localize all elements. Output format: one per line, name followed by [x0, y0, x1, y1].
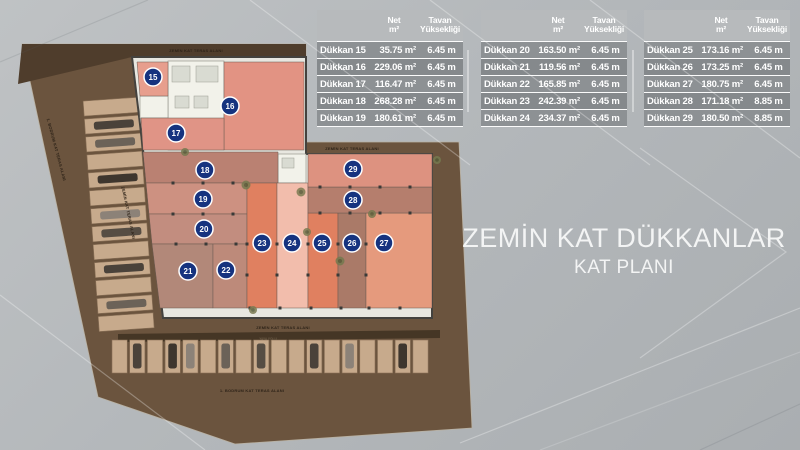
- parking-stall: [378, 340, 393, 373]
- label-terrace-bottom: ZEMİN KAT TERAS ALANI: [256, 325, 310, 330]
- parking-stall: [324, 340, 339, 373]
- unit-badge-18: 18: [196, 161, 214, 179]
- unit-28: [308, 187, 432, 213]
- unit-badge-28: 28: [344, 191, 362, 209]
- car: [257, 344, 266, 369]
- svg-text:23: 23: [258, 239, 267, 248]
- label-basement-bottom: 1. BODRUM KAT TERAS ALANI: [220, 388, 284, 393]
- parking-stall: [360, 340, 375, 373]
- title-line2: KAT PLANI: [452, 257, 796, 279]
- table-header: Netm² TavanYüksekliği: [644, 10, 790, 40]
- car: [221, 344, 230, 369]
- parking-stall: [112, 340, 127, 373]
- unit-badge-24: 24: [283, 234, 301, 252]
- table-row: Dükkan 29180.50 m²8.85 m: [644, 110, 790, 127]
- unit-badge-26: 26: [343, 234, 361, 252]
- unit-badge-17: 17: [167, 124, 185, 142]
- unit-badge-22: 22: [217, 261, 235, 279]
- car: [310, 344, 319, 369]
- car: [345, 344, 354, 369]
- unit-badge-20: 20: [195, 220, 213, 238]
- unit-25: [308, 213, 338, 308]
- header-ceiling: TavanYüksekliği: [745, 16, 789, 35]
- unit-badge-21: 21: [179, 262, 197, 280]
- unit-badge-15: 15: [144, 68, 162, 86]
- table-header: Netm² TavanYüksekliği: [317, 10, 463, 40]
- table-row: Dükkan 26173.25 m²6.45 m: [644, 59, 790, 76]
- table-row: Dükkan 25173.16 m²6.45 m: [644, 42, 790, 59]
- svg-text:15: 15: [149, 73, 158, 82]
- table-row: Dükkan 23242.39 m²6.45 m: [481, 93, 627, 110]
- page-title: ZEMİN KAT DÜKKANLAR KAT PLANI: [452, 224, 796, 279]
- svg-text:16: 16: [226, 102, 235, 111]
- svg-text:22: 22: [222, 266, 231, 275]
- table-row: Dükkan 20163.50 m²6.45 m: [481, 42, 627, 59]
- svg-text:25: 25: [318, 239, 327, 248]
- table-row: Dükkan 21119.56 m²6.45 m: [481, 59, 627, 76]
- unit-badge-19: 19: [194, 190, 212, 208]
- parking-stall: [289, 340, 304, 373]
- svg-text:19: 19: [199, 195, 208, 204]
- label-terrace-top: ZEMİN KAT TERAS ALANI: [169, 48, 223, 53]
- parking-stall: [236, 340, 251, 373]
- chevron-line: [460, 308, 800, 443]
- svg-text:20: 20: [200, 225, 209, 234]
- svg-text:17: 17: [172, 129, 181, 138]
- table-row: Dükkan 22165.85 m²6.45 m: [481, 76, 627, 93]
- header-net: Netm²: [697, 16, 745, 35]
- table-row: Dükkan 16229.06 m²6.45 m: [317, 59, 463, 76]
- table-row: Dükkan 27180.75 m²6.45 m: [644, 76, 790, 93]
- unit-29: [308, 154, 432, 187]
- table-header: Netm² TavanYüksekliği: [481, 10, 627, 40]
- car: [133, 344, 142, 369]
- unit-badge-29: 29: [344, 160, 362, 178]
- title-line1: ZEMİN KAT DÜKKANLAR: [452, 224, 796, 254]
- car: [398, 344, 407, 369]
- table-row: Dükkan 19180.61 m²6.45 m: [317, 110, 463, 127]
- unit-27: [366, 213, 432, 308]
- table-row: Dükkan 1535.75 m²6.45 m: [317, 42, 463, 59]
- shops-table-3: Netm² TavanYüksekliği Dükkan 25173.16 m²…: [644, 10, 790, 127]
- unit-badge-25: 25: [313, 234, 331, 252]
- table-row: Dükkan 17116.47 m²6.45 m: [317, 76, 463, 93]
- shops-table-1: Netm² TavanYüksekliği Dükkan 1535.75 m²6…: [317, 10, 463, 127]
- svg-text:27: 27: [380, 239, 389, 248]
- shops-table-2: Netm² TavanYüksekliği Dükkan 20163.50 m²…: [481, 10, 627, 127]
- table-row: Dükkan 28171.18 m²8.85 m: [644, 93, 790, 110]
- chevron-line: [700, 404, 800, 450]
- core-stair-shaft-fixture: [282, 158, 294, 168]
- parking-stall: [413, 340, 428, 373]
- unit-badge-16: 16: [221, 97, 239, 115]
- header-net: Netm²: [370, 16, 418, 35]
- svg-text:24: 24: [288, 239, 297, 248]
- table-row: Dükkan 18268.28 m²6.45 m: [317, 93, 463, 110]
- car: [168, 344, 177, 369]
- label-road: YAYA YOLU: [259, 337, 277, 341]
- header-net: Netm²: [534, 16, 582, 35]
- label-terrace-right: ZEMİN KAT TERAS ALANI: [325, 146, 379, 151]
- parking-stall: [201, 340, 216, 373]
- unit-badge-27: 27: [375, 234, 393, 252]
- core-corridor: [140, 96, 168, 118]
- parking-stall: [147, 340, 162, 373]
- unit-badge-23: 23: [253, 234, 271, 252]
- parking-stall: [271, 340, 286, 373]
- page: 15 16 17 18 19 20 21 22 23 24 25 26 27 2…: [0, 0, 800, 450]
- svg-text:28: 28: [349, 196, 358, 205]
- chevron-line: [540, 352, 800, 450]
- header-ceiling: TavanYüksekliği: [418, 16, 462, 35]
- header-ceiling: TavanYüksekliği: [582, 16, 626, 35]
- car: [186, 344, 195, 369]
- svg-text:29: 29: [349, 165, 358, 174]
- svg-text:26: 26: [348, 239, 357, 248]
- svg-text:18: 18: [201, 166, 210, 175]
- table-row: Dükkan 24234.37 m²6.45 m: [481, 110, 627, 127]
- svg-text:21: 21: [184, 267, 193, 276]
